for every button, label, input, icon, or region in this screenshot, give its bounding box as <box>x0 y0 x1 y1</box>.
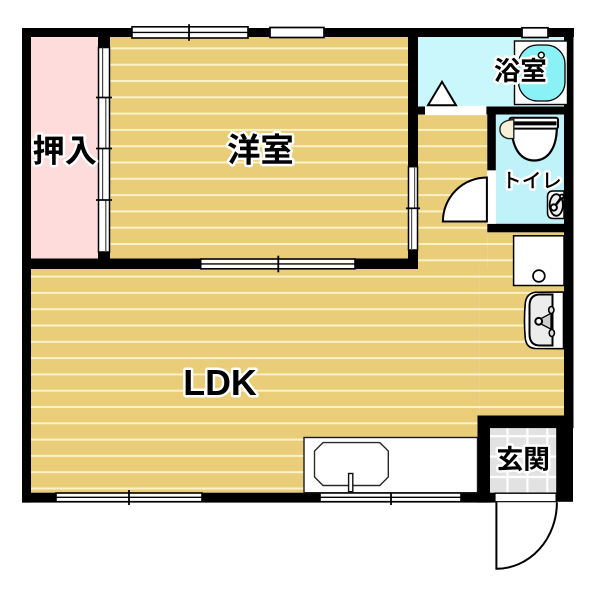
svg-text:LDK: LDK <box>183 362 257 403</box>
